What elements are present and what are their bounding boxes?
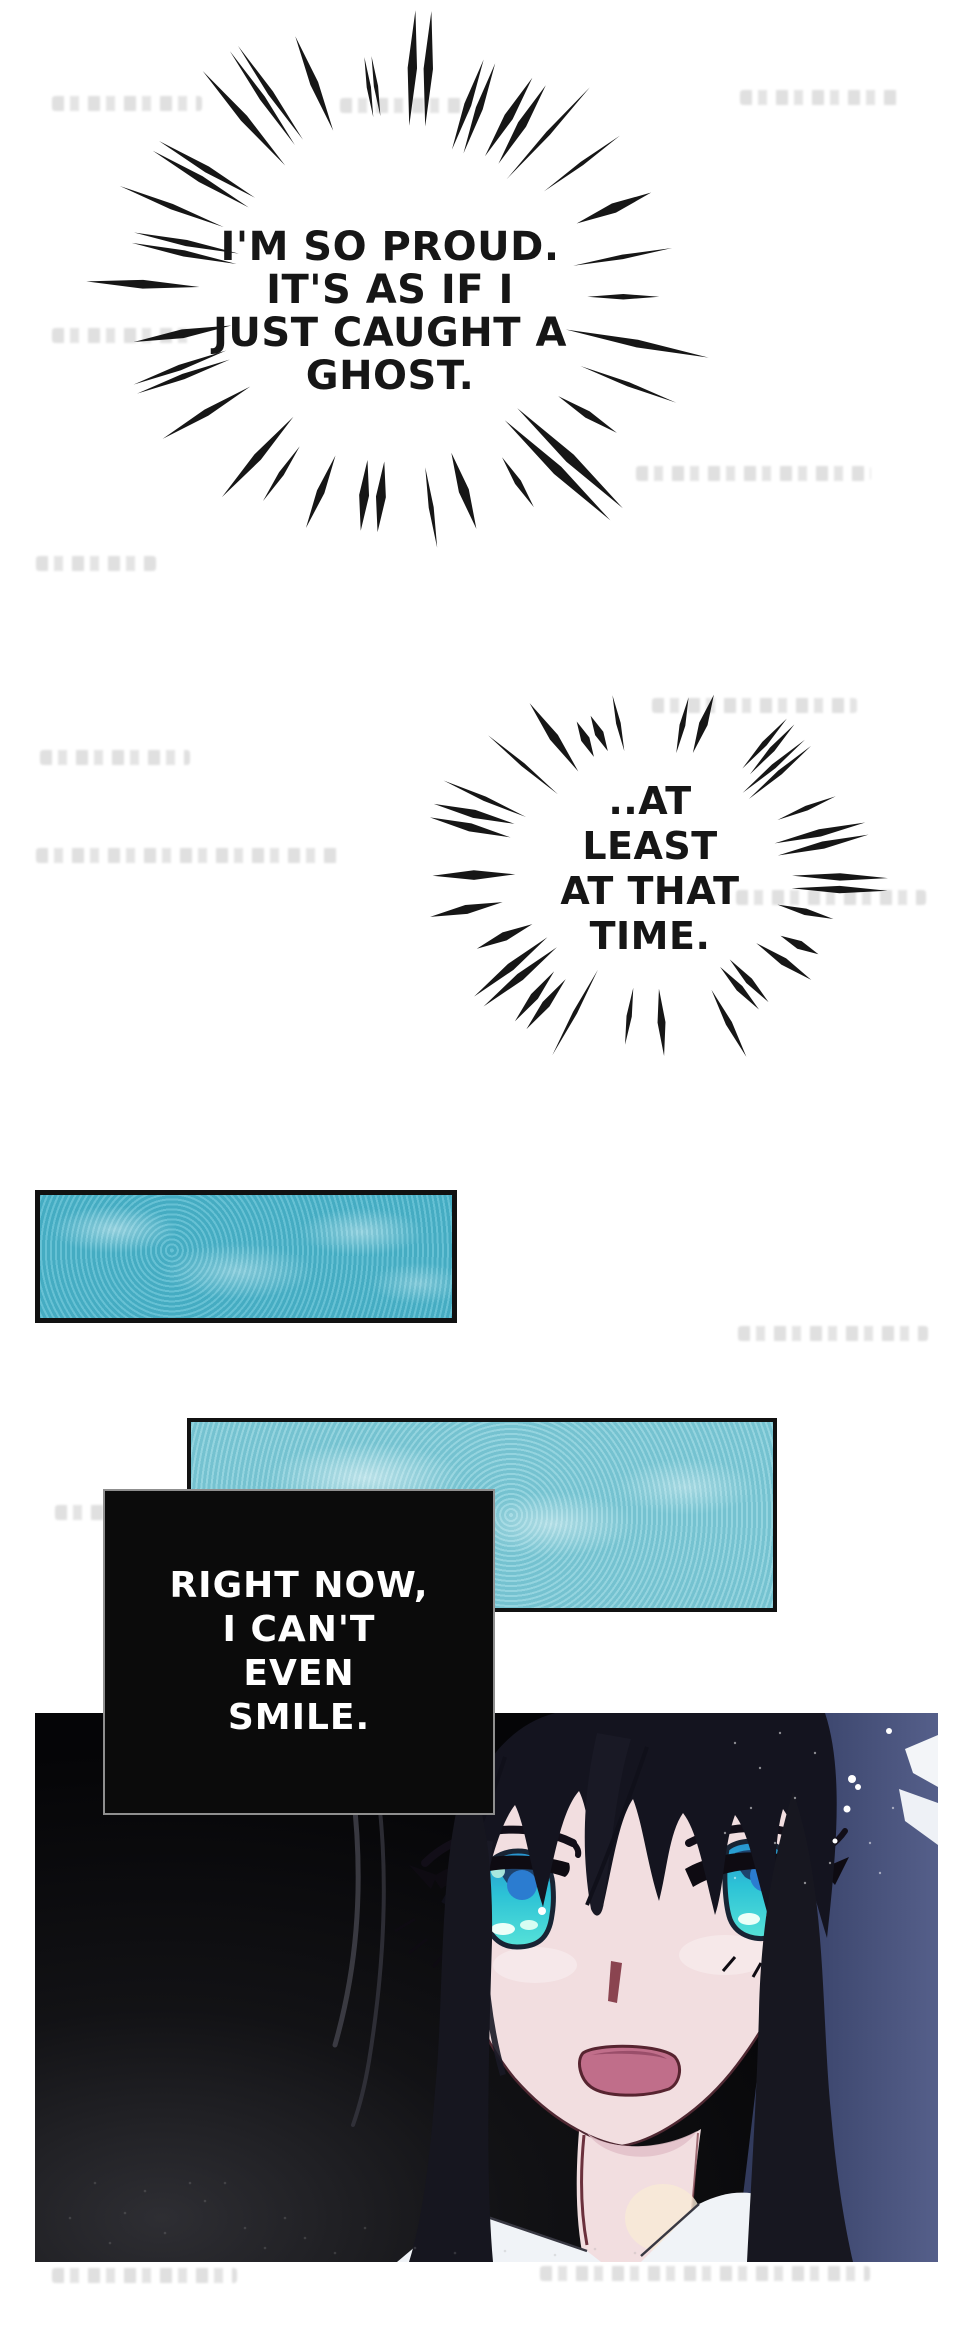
- caption-line: RIGHT NOW,: [105, 1564, 493, 1608]
- caption-line: I CAN'T: [105, 1608, 493, 1652]
- burst-2-line: LEAST: [450, 824, 850, 869]
- burst-2-line: AT THAT: [450, 869, 850, 914]
- burst-1-line: JUST CAUGHT A: [140, 312, 640, 355]
- caption-line: EVEN: [105, 1652, 493, 1696]
- burst-1-line: I'M SO PROUD.: [140, 226, 640, 269]
- caption-line: SMILE.: [105, 1696, 493, 1740]
- burst-2-line: ..AT: [450, 779, 850, 824]
- burst-1-line: IT'S AS IF I: [140, 269, 640, 312]
- speech-burst-2: ..AT LEAST AT THAT TIME.: [450, 779, 850, 959]
- character-mouth: [580, 2046, 680, 2095]
- speech-burst-1: I'M SO PROUD. IT'S AS IF I JUST CAUGHT A…: [140, 226, 640, 398]
- comic-page: I'M SO PROUD. IT'S AS IF I JUST CAUGHT A…: [0, 0, 971, 2340]
- teal-panel-1: [35, 1190, 457, 1323]
- burst-1-line: GHOST.: [140, 355, 640, 398]
- caption-box: RIGHT NOW, I CAN'T EVEN SMILE.: [103, 1489, 495, 1815]
- burst-2-line: TIME.: [450, 914, 850, 959]
